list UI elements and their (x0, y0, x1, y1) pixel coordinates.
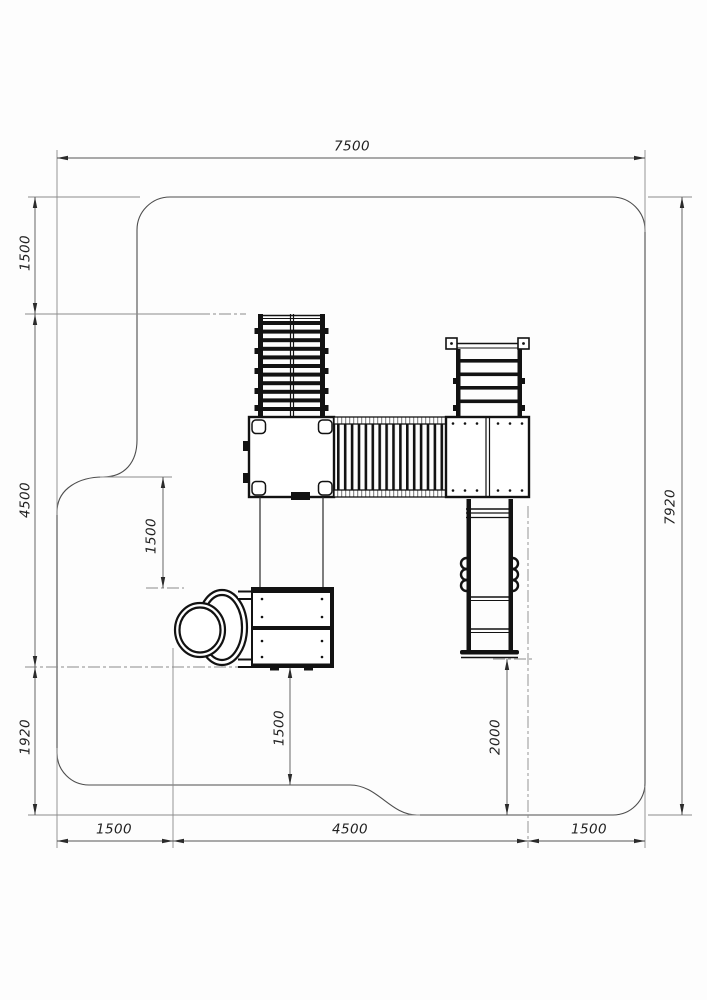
rope-bridge (334, 417, 448, 497)
dim-label-right-height: 7920 (664, 489, 678, 525)
dim-label-left-middle: 4500 (19, 482, 33, 518)
left-platform (243, 417, 334, 500)
dimension-lines (35, 158, 682, 841)
dim-label-bottom-middle: 4500 (332, 823, 368, 837)
dim-label-inner-platform: 1500 (145, 518, 159, 554)
climbing-net-ladder (255, 314, 329, 417)
centerlines (25, 314, 532, 848)
straight-slide (460, 499, 519, 658)
rung-ladder (446, 338, 529, 417)
dim-label-left-bottom: 1920 (19, 719, 33, 755)
dim-label-bottom-left: 1500 (96, 823, 132, 837)
right-platform (446, 417, 529, 497)
bridge-slats (337, 424, 445, 490)
dimension-arrowheads (33, 156, 684, 843)
platform-hinge (243, 441, 250, 451)
spiral-tube-slide (175, 590, 253, 667)
slide-chute (260, 497, 323, 588)
dim-label-inner-exit: 1500 (273, 710, 287, 746)
chute-attachment (291, 492, 310, 500)
safety-zone-outline (57, 197, 645, 815)
dim-label-top-width: 7500 (334, 140, 370, 154)
dim-label-left-top: 1500 (19, 235, 33, 271)
platform-hinge (243, 473, 250, 483)
slide-exit-lip (460, 650, 519, 655)
plan-drawing: 7500 7920 1500 4500 1920 1500 1500 2000 … (0, 0, 707, 1000)
dim-label-inner-clearance: 2000 (489, 719, 503, 755)
lower-platform (252, 588, 333, 671)
extension-lines (25, 150, 692, 848)
dim-label-bottom-right: 1500 (571, 823, 607, 837)
